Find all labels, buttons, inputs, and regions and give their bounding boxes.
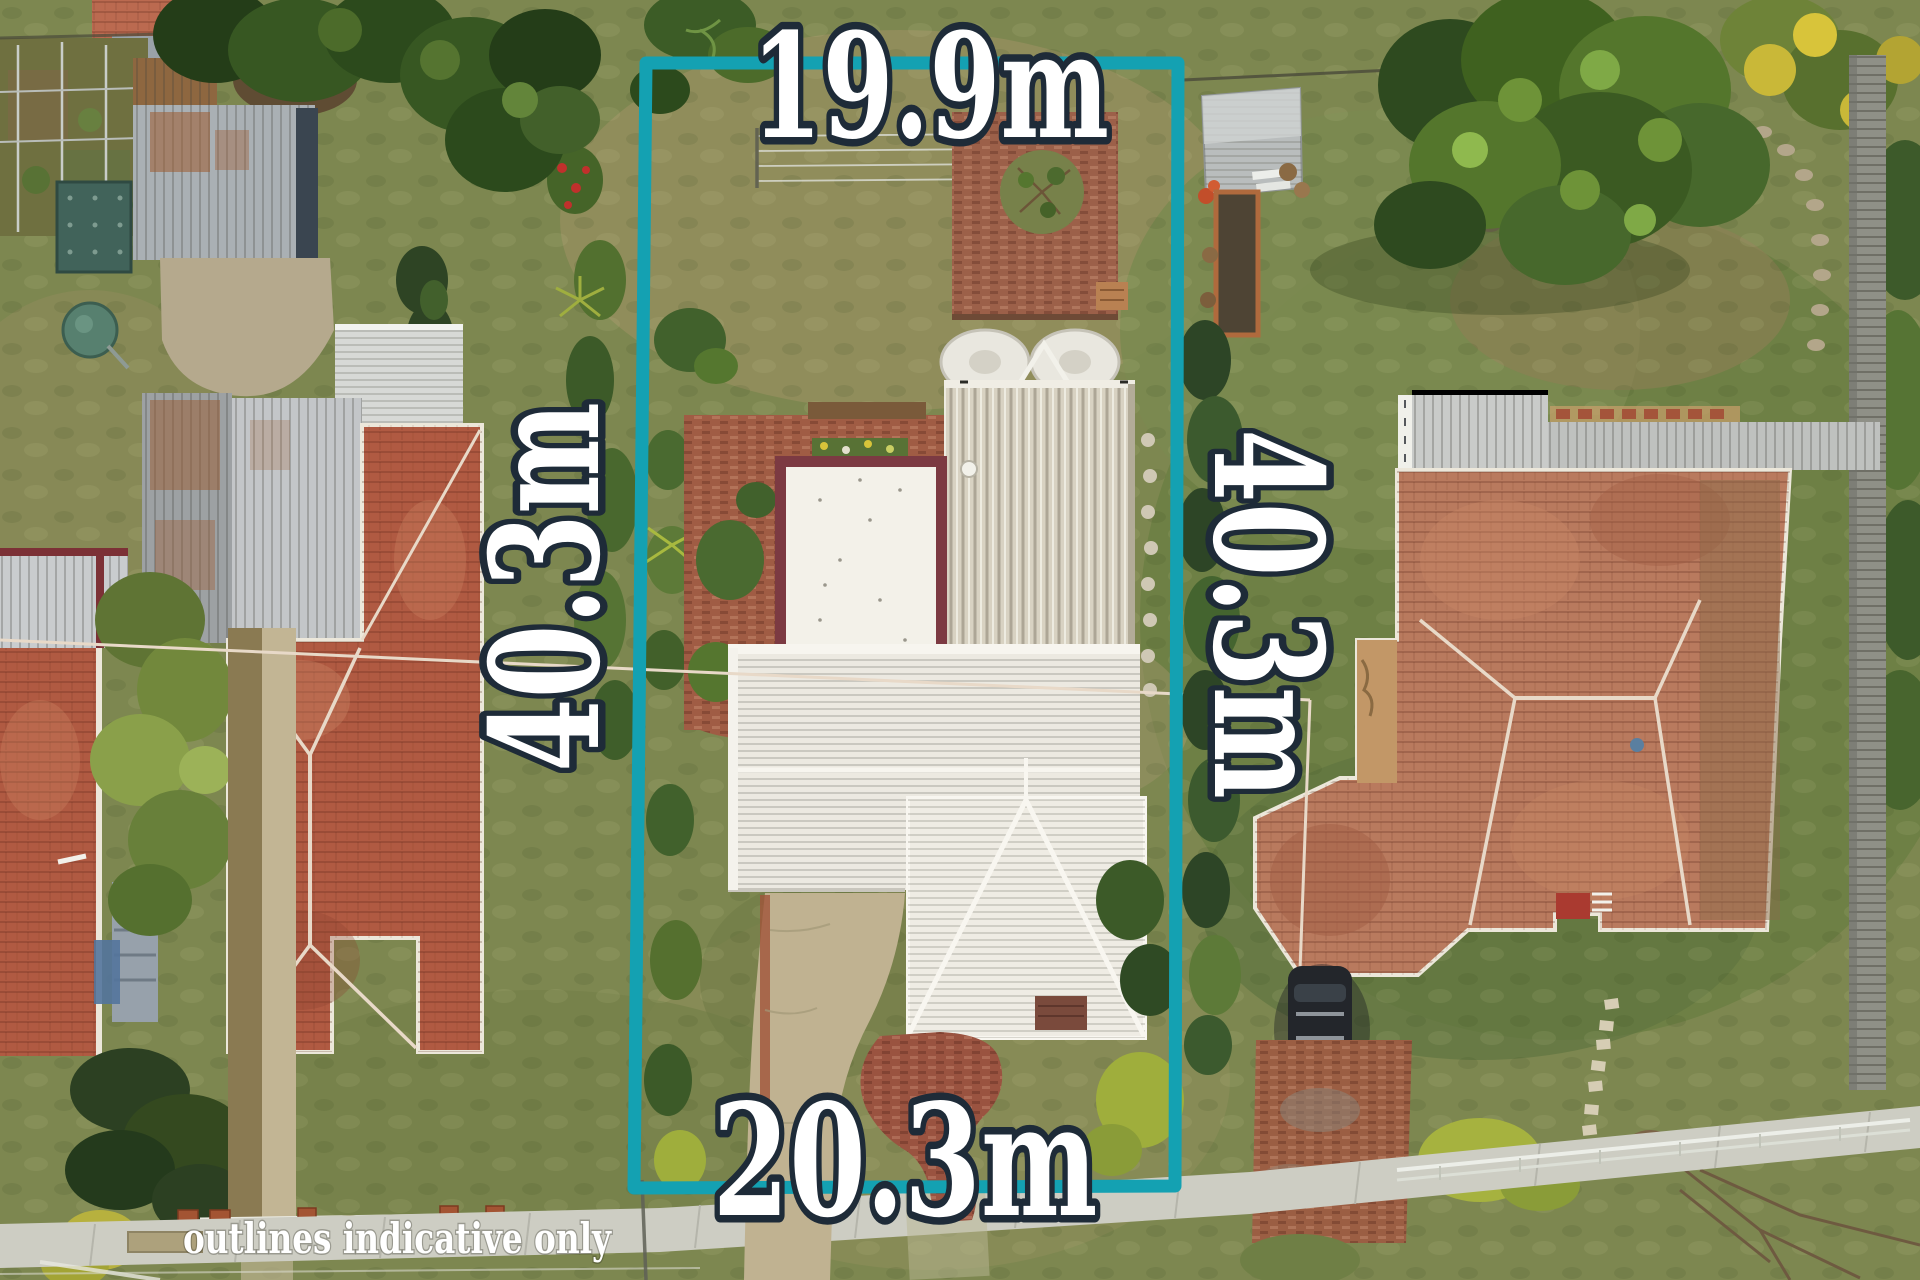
disclaimer-text: outlines indicative only xyxy=(183,1214,612,1263)
dimension-label-right: 40.3m xyxy=(1179,429,1355,799)
aerial-photo: 19.9m 40.3m 40.3m 20.3m outlines indicat… xyxy=(0,0,1920,1280)
aerial-photo-listing-image: 19.9m 40.3m 40.3m 20.3m outlines indicat… xyxy=(0,0,1920,1280)
bench xyxy=(1096,282,1128,310)
center-house-rear-roof xyxy=(944,380,1135,668)
brick-driveway xyxy=(1252,1040,1412,1243)
blue-tarp xyxy=(94,940,120,1004)
boundary-fence xyxy=(1849,55,1886,1090)
tan-side-path xyxy=(228,628,296,1280)
dimension-label-top: 19.9m xyxy=(751,2,1109,172)
brick-border-row xyxy=(1550,406,1740,422)
dimension-label-bottom: 20.3m xyxy=(713,1069,1098,1252)
garden-shed-teal xyxy=(57,182,131,272)
front-steps xyxy=(1035,996,1087,1030)
center-house-flat-roof xyxy=(775,456,947,665)
timber-planter xyxy=(808,402,926,419)
dimension-label-left: 40.3m xyxy=(458,402,634,772)
satellite-dish-icon xyxy=(1630,738,1644,752)
raised-garden-bed xyxy=(1216,192,1258,335)
roof-vent-icon xyxy=(961,461,977,477)
flower-row xyxy=(812,438,908,458)
